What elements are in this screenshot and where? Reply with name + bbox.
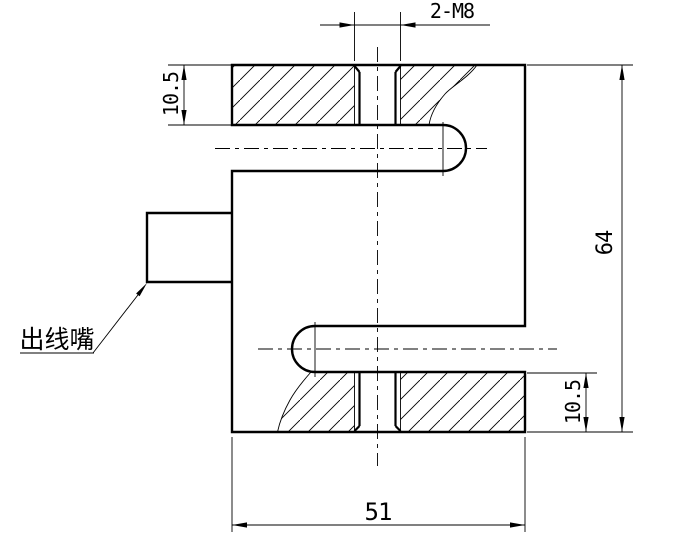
chamfer-line <box>396 66 401 72</box>
cable-outlet-callout: 出线嘴 <box>19 283 147 354</box>
hatch-area-top-left <box>232 65 355 125</box>
dimension-height: 64 <box>527 65 633 432</box>
hatch-area-bottom-right <box>401 372 526 432</box>
arrowhead-icon <box>510 522 525 527</box>
bottom-plate-hatching <box>278 372 526 432</box>
leader-arrowhead-icon <box>136 283 147 296</box>
top-plate-thickness-label: 10.5 <box>159 72 183 116</box>
dimension-bottom-plate-thickness: 10.5 <box>527 373 597 432</box>
chamfer-line <box>355 66 360 72</box>
arrowhead-icon <box>619 417 624 432</box>
thread-dimension-label: 2-M8 <box>430 0 474 23</box>
arrowhead-icon <box>619 65 624 80</box>
bottom-plate-thickness-label: 10.5 <box>561 380 585 424</box>
dimension-top-plate-thickness: 10.5 <box>159 65 232 125</box>
hatch-area-top-right <box>401 65 478 125</box>
dimension-width: 51 <box>232 437 525 532</box>
dimension-thread: 2-M8 <box>320 0 490 61</box>
arrowhead-icon <box>232 522 247 527</box>
engineering-drawing: 2-M8 10.5 64 10.5 51 <box>0 0 676 538</box>
load-cell-section-view: 2-M8 10.5 64 10.5 51 <box>0 0 676 538</box>
chamfer-line <box>396 426 401 431</box>
height-dimension-label: 64 <box>593 230 618 255</box>
arrowhead-icon <box>401 22 416 27</box>
arrowhead-icon <box>340 22 355 27</box>
cable-outlet-protrusion <box>147 213 232 282</box>
leader-line <box>93 291 141 353</box>
chamfer-line <box>355 426 360 431</box>
width-dimension-label: 51 <box>365 498 392 526</box>
cable-outlet-label: 出线嘴 <box>19 325 94 354</box>
